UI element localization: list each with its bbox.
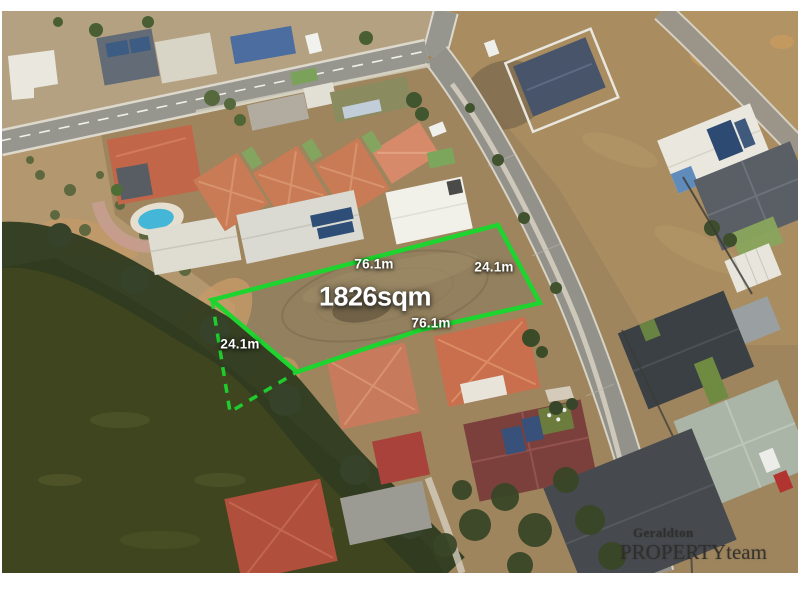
agency-logo: Geraldton PROPERTYteam bbox=[620, 526, 796, 563]
dimension-label-right: 24.1m bbox=[474, 260, 513, 275]
palm-tree bbox=[111, 184, 123, 196]
agency-logo-name: PROPERTYteam bbox=[620, 541, 796, 563]
dimension-label-top: 76.1m bbox=[354, 257, 393, 272]
dimension-label-left: 24.1m bbox=[220, 337, 259, 352]
dimension-label-bottom: 76.1m bbox=[411, 316, 450, 331]
area-label: 1826sqm bbox=[319, 282, 431, 313]
listing-image: 76.1m 24.1m 1826sqm 76.1m 24.1m Geraldto… bbox=[0, 0, 800, 600]
aerial-photo: 76.1m 24.1m 1826sqm 76.1m 24.1m Geraldto… bbox=[2, 11, 798, 573]
solar-roof-house bbox=[96, 29, 159, 86]
agency-logo-city: Geraldton bbox=[633, 526, 796, 540]
